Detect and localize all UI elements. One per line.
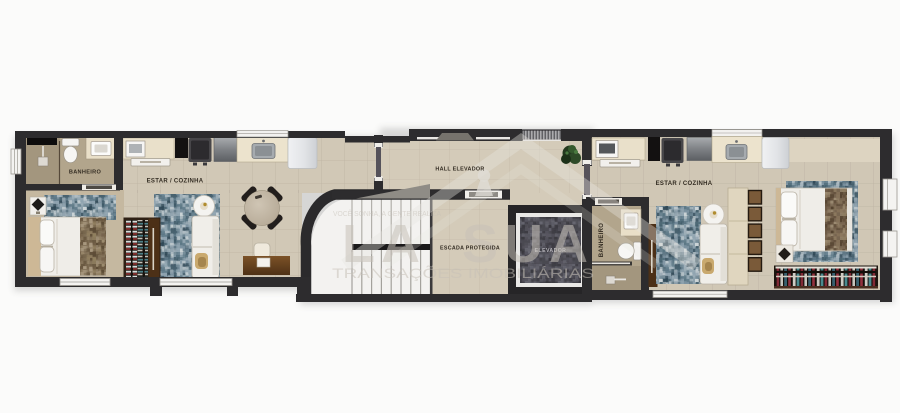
svg-text:ESTAR / COZINHA: ESTAR / COZINHA: [656, 181, 713, 187]
svg-text:BANHEIRO: BANHEIRO: [599, 223, 605, 257]
svg-text:ESCADA PROTEGIDA: ESCADA PROTEGIDA: [440, 246, 500, 252]
svg-text:HALL ELEVADOR: HALL ELEVADOR: [435, 167, 484, 173]
svg-text:TRANSAÇÕES IMOBILIÁRIAS: TRANSAÇÕES IMOBILIÁRIAS: [332, 265, 594, 281]
svg-text:VOCÊ SONHA, A GENTE REALIZA: VOCÊ SONHA, A GENTE REALIZA: [333, 209, 441, 218]
svg-text:BANHEIRO: BANHEIRO: [69, 170, 102, 176]
svg-text:ESTAR / COZINHA: ESTAR / COZINHA: [147, 179, 204, 185]
